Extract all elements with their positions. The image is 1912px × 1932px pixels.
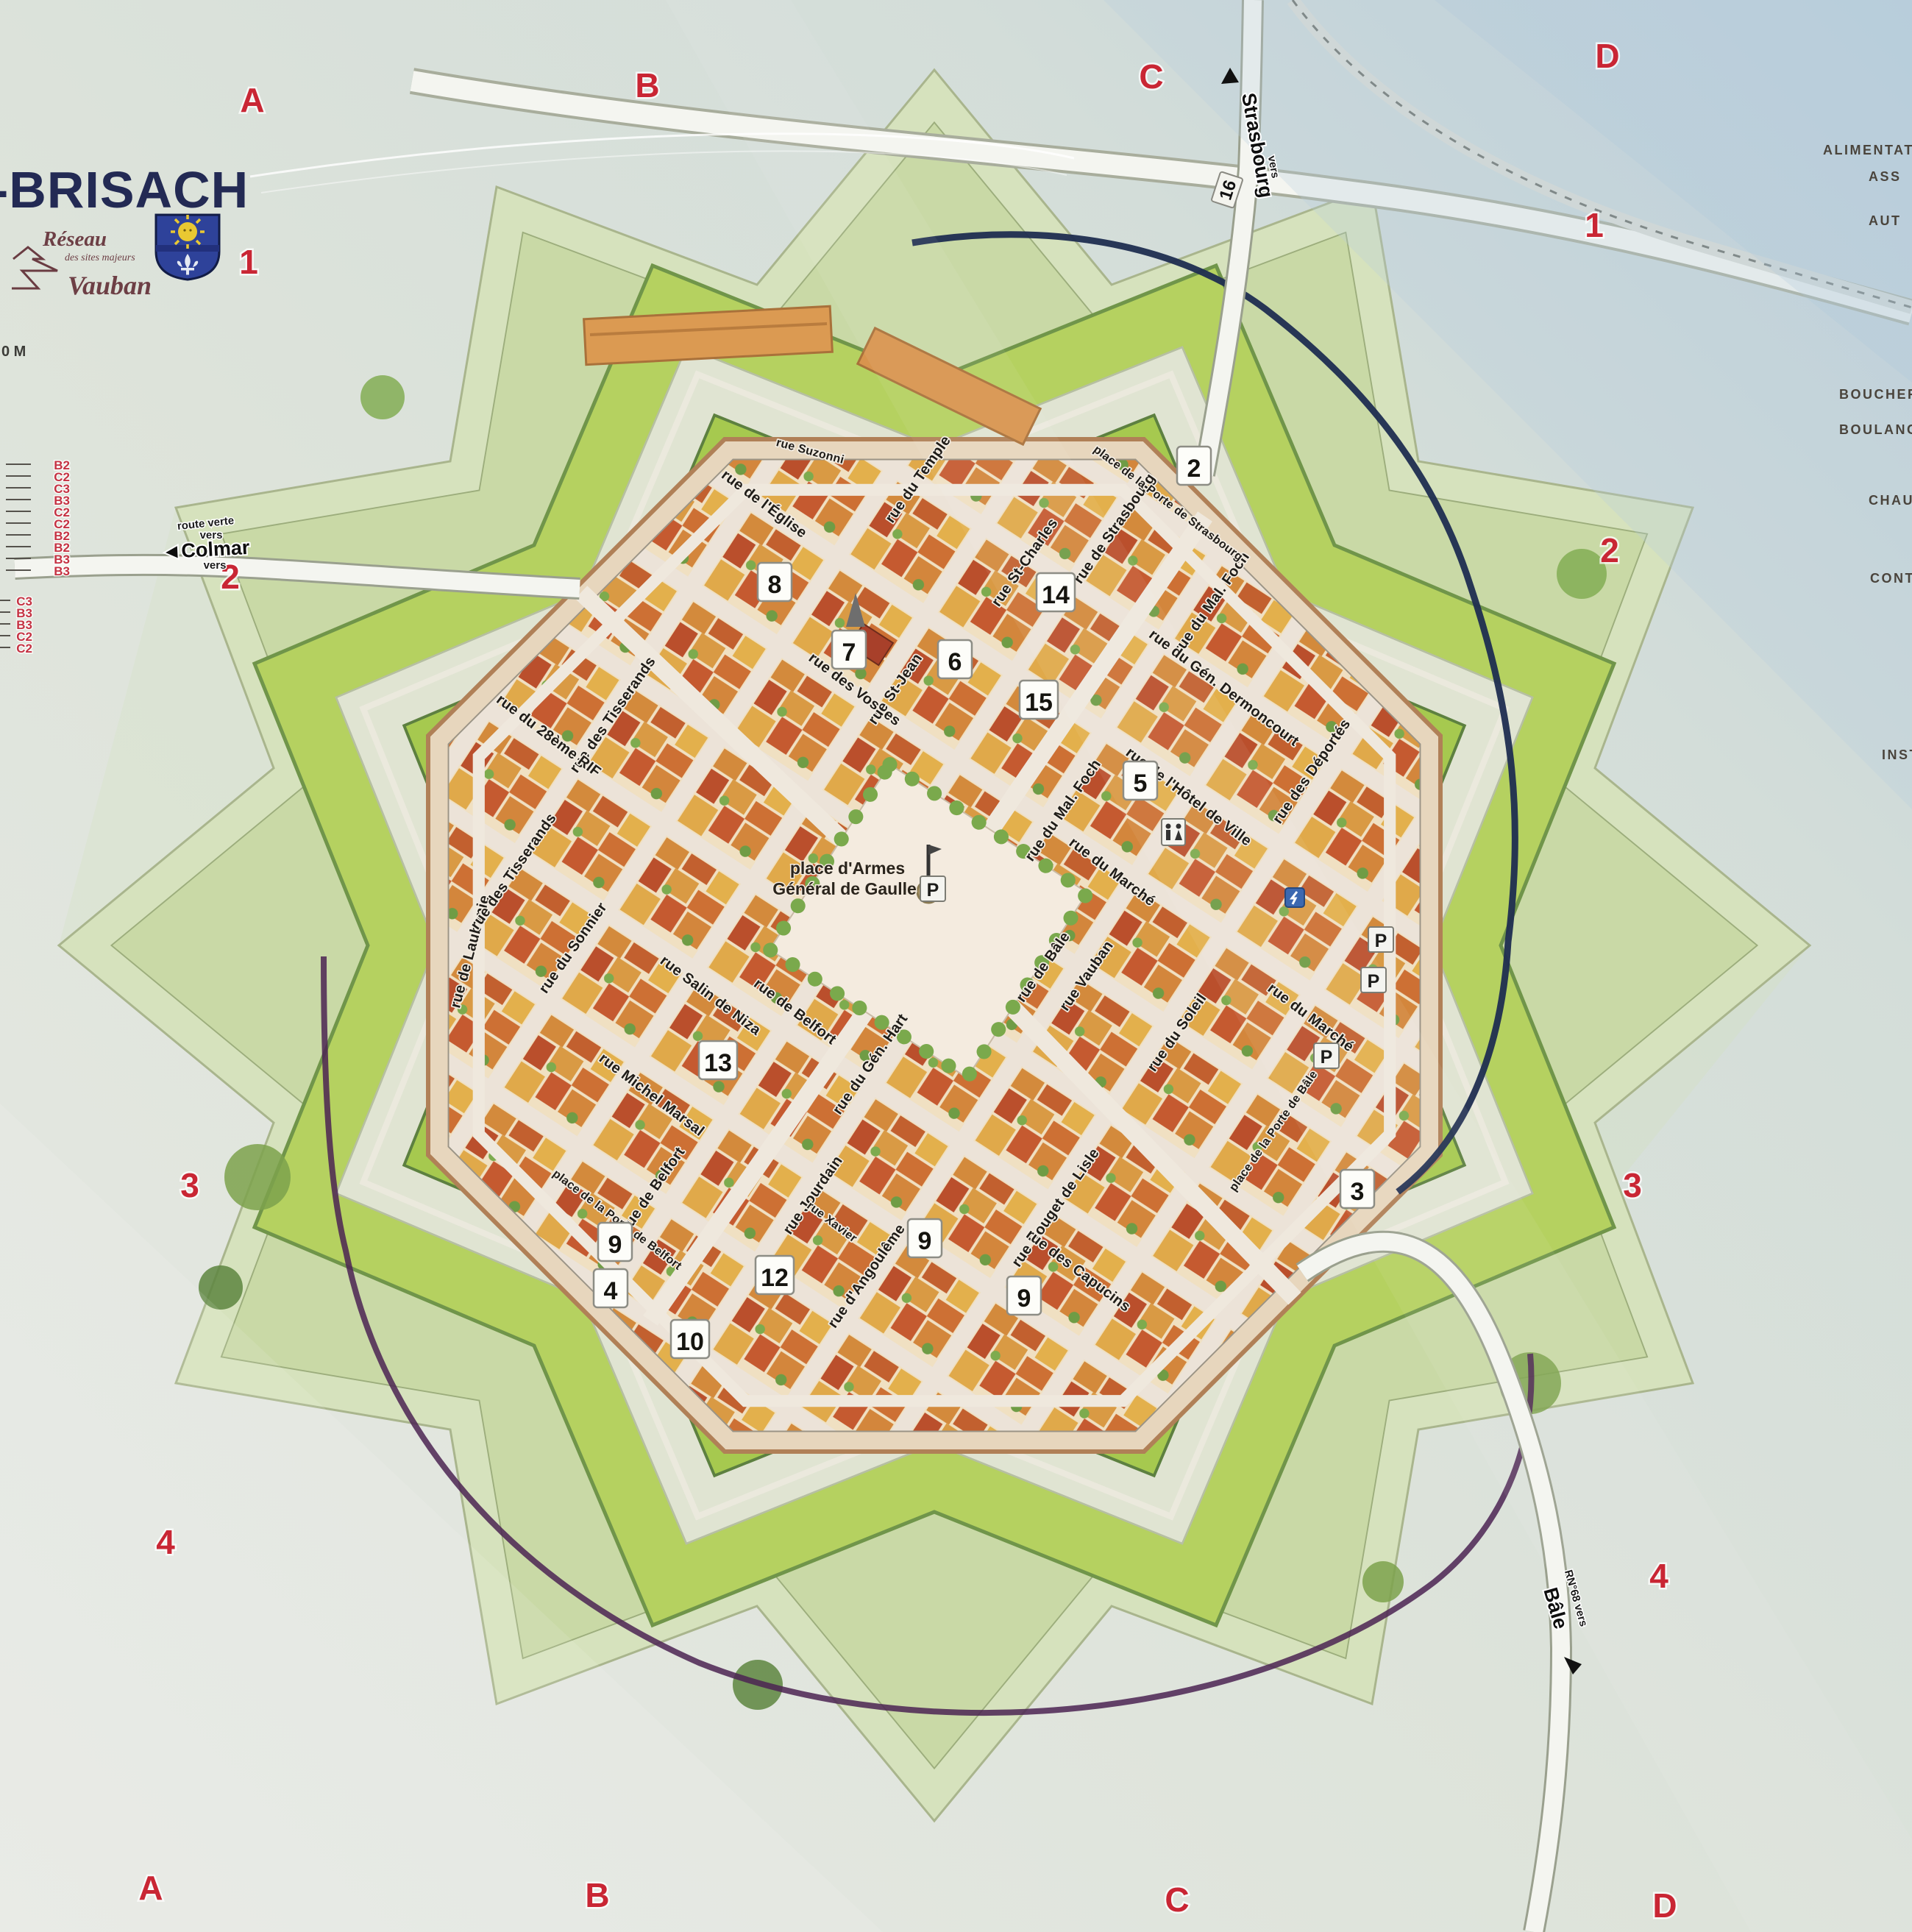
legend-item: BOUCHERIE-C xyxy=(1839,387,1912,402)
town-coat-of-arms xyxy=(156,215,219,280)
grid-left-3: 3 xyxy=(180,1166,199,1204)
svg-text:5: 5 xyxy=(1134,770,1148,798)
poi-marker: 10 xyxy=(671,1320,709,1358)
svg-text:9: 9 xyxy=(608,1231,622,1259)
sun-emblem xyxy=(178,222,197,241)
svg-text:P: P xyxy=(1321,1047,1333,1068)
left-ref: B3 xyxy=(54,564,70,578)
svg-text:6: 6 xyxy=(948,648,962,676)
poi-marker: 12 xyxy=(756,1256,794,1294)
grid-right-4: 4 xyxy=(1649,1557,1668,1595)
svg-text:P: P xyxy=(1375,931,1387,951)
grid-right-2: 2 xyxy=(1600,531,1619,569)
poi-marker: 14 xyxy=(1037,573,1075,611)
panel-title: -BRISACH xyxy=(0,161,249,219)
parking-icon: P xyxy=(1314,1043,1339,1068)
svg-text:place d'Armes: place d'Armes xyxy=(790,859,905,878)
svg-text:2: 2 xyxy=(1187,455,1201,483)
grid-left-1: 1 xyxy=(239,243,258,281)
grid-top-d: D xyxy=(1595,37,1619,75)
neuf-brisach-map: -BRISACH 0 M Réseau des sites majeurs Va… xyxy=(0,0,1912,1932)
left-ref: C2 xyxy=(16,642,32,656)
parking-icon: P xyxy=(920,876,945,901)
toilets-icon xyxy=(1162,819,1185,845)
grid-bottom-b: B xyxy=(585,1876,609,1914)
svg-text:3: 3 xyxy=(1351,1178,1365,1206)
svg-text:12: 12 xyxy=(761,1264,789,1292)
poi-marker: 13 xyxy=(699,1041,737,1079)
logo-line2: des sites majeurs xyxy=(65,252,135,263)
svg-text:9: 9 xyxy=(1017,1285,1031,1313)
svg-text:13: 13 xyxy=(704,1049,732,1077)
svg-text:15: 15 xyxy=(1025,689,1053,717)
grid-top-c: C xyxy=(1139,57,1163,96)
legend-item: CHAUFFA xyxy=(1869,493,1912,508)
svg-text:8: 8 xyxy=(768,571,782,599)
svg-text:7: 7 xyxy=(842,639,856,667)
legend-item: BOULANGERIE xyxy=(1839,422,1912,437)
poi-marker: 8 xyxy=(758,563,792,601)
poi-marker: 3 xyxy=(1340,1170,1374,1208)
poi-marker: 2 xyxy=(1177,447,1211,485)
grid-bottom-d: D xyxy=(1652,1886,1677,1925)
poi-marker: 5 xyxy=(1123,761,1157,800)
legend-item: INST xyxy=(1882,747,1912,762)
grid-left-4: 4 xyxy=(156,1523,175,1561)
svg-text:10: 10 xyxy=(676,1328,704,1356)
logo-line1: Réseau xyxy=(42,227,107,251)
logo-line3: Vauban xyxy=(68,271,152,300)
parking-icon: P xyxy=(1361,967,1386,992)
svg-text:Général de Gaulle: Général de Gaulle xyxy=(772,879,917,898)
parking-icon: P xyxy=(1368,927,1393,952)
legend-item: ASS xyxy=(1869,169,1902,184)
grid-right-3: 3 xyxy=(1623,1166,1642,1204)
map-panel-photo: -BRISACH 0 M Réseau des sites majeurs Va… xyxy=(0,0,1912,1932)
poi-marker: 7 xyxy=(832,631,866,669)
grid-bottom-a: A xyxy=(138,1869,163,1907)
svg-text:9: 9 xyxy=(918,1227,932,1255)
grid-bottom-c: C xyxy=(1165,1880,1189,1919)
poi-marker: 9 xyxy=(908,1219,942,1257)
poi-marker: 9 xyxy=(598,1223,632,1261)
svg-text:P: P xyxy=(1368,971,1380,992)
poi-marker: 4 xyxy=(594,1269,628,1307)
grid-right-1: 1 xyxy=(1585,206,1604,244)
svg-text:vers: vers xyxy=(204,559,227,572)
grid-top-a: A xyxy=(240,81,264,119)
legend-item: CONTRÔ xyxy=(1870,570,1912,586)
svg-text:4: 4 xyxy=(604,1277,618,1305)
legend-item: ALIMENTATION G xyxy=(1823,143,1912,157)
poi-marker: 6 xyxy=(938,640,972,678)
blue-pictogram xyxy=(1285,888,1304,907)
svg-text:P: P xyxy=(927,880,939,901)
scale-label: 0 M xyxy=(1,344,26,360)
legend-item: AUT xyxy=(1869,213,1902,228)
poi-marker: 15 xyxy=(1020,681,1058,719)
grid-top-b: B xyxy=(635,66,659,104)
svg-text:14: 14 xyxy=(1042,581,1070,609)
poi-marker: 9 xyxy=(1007,1276,1041,1315)
